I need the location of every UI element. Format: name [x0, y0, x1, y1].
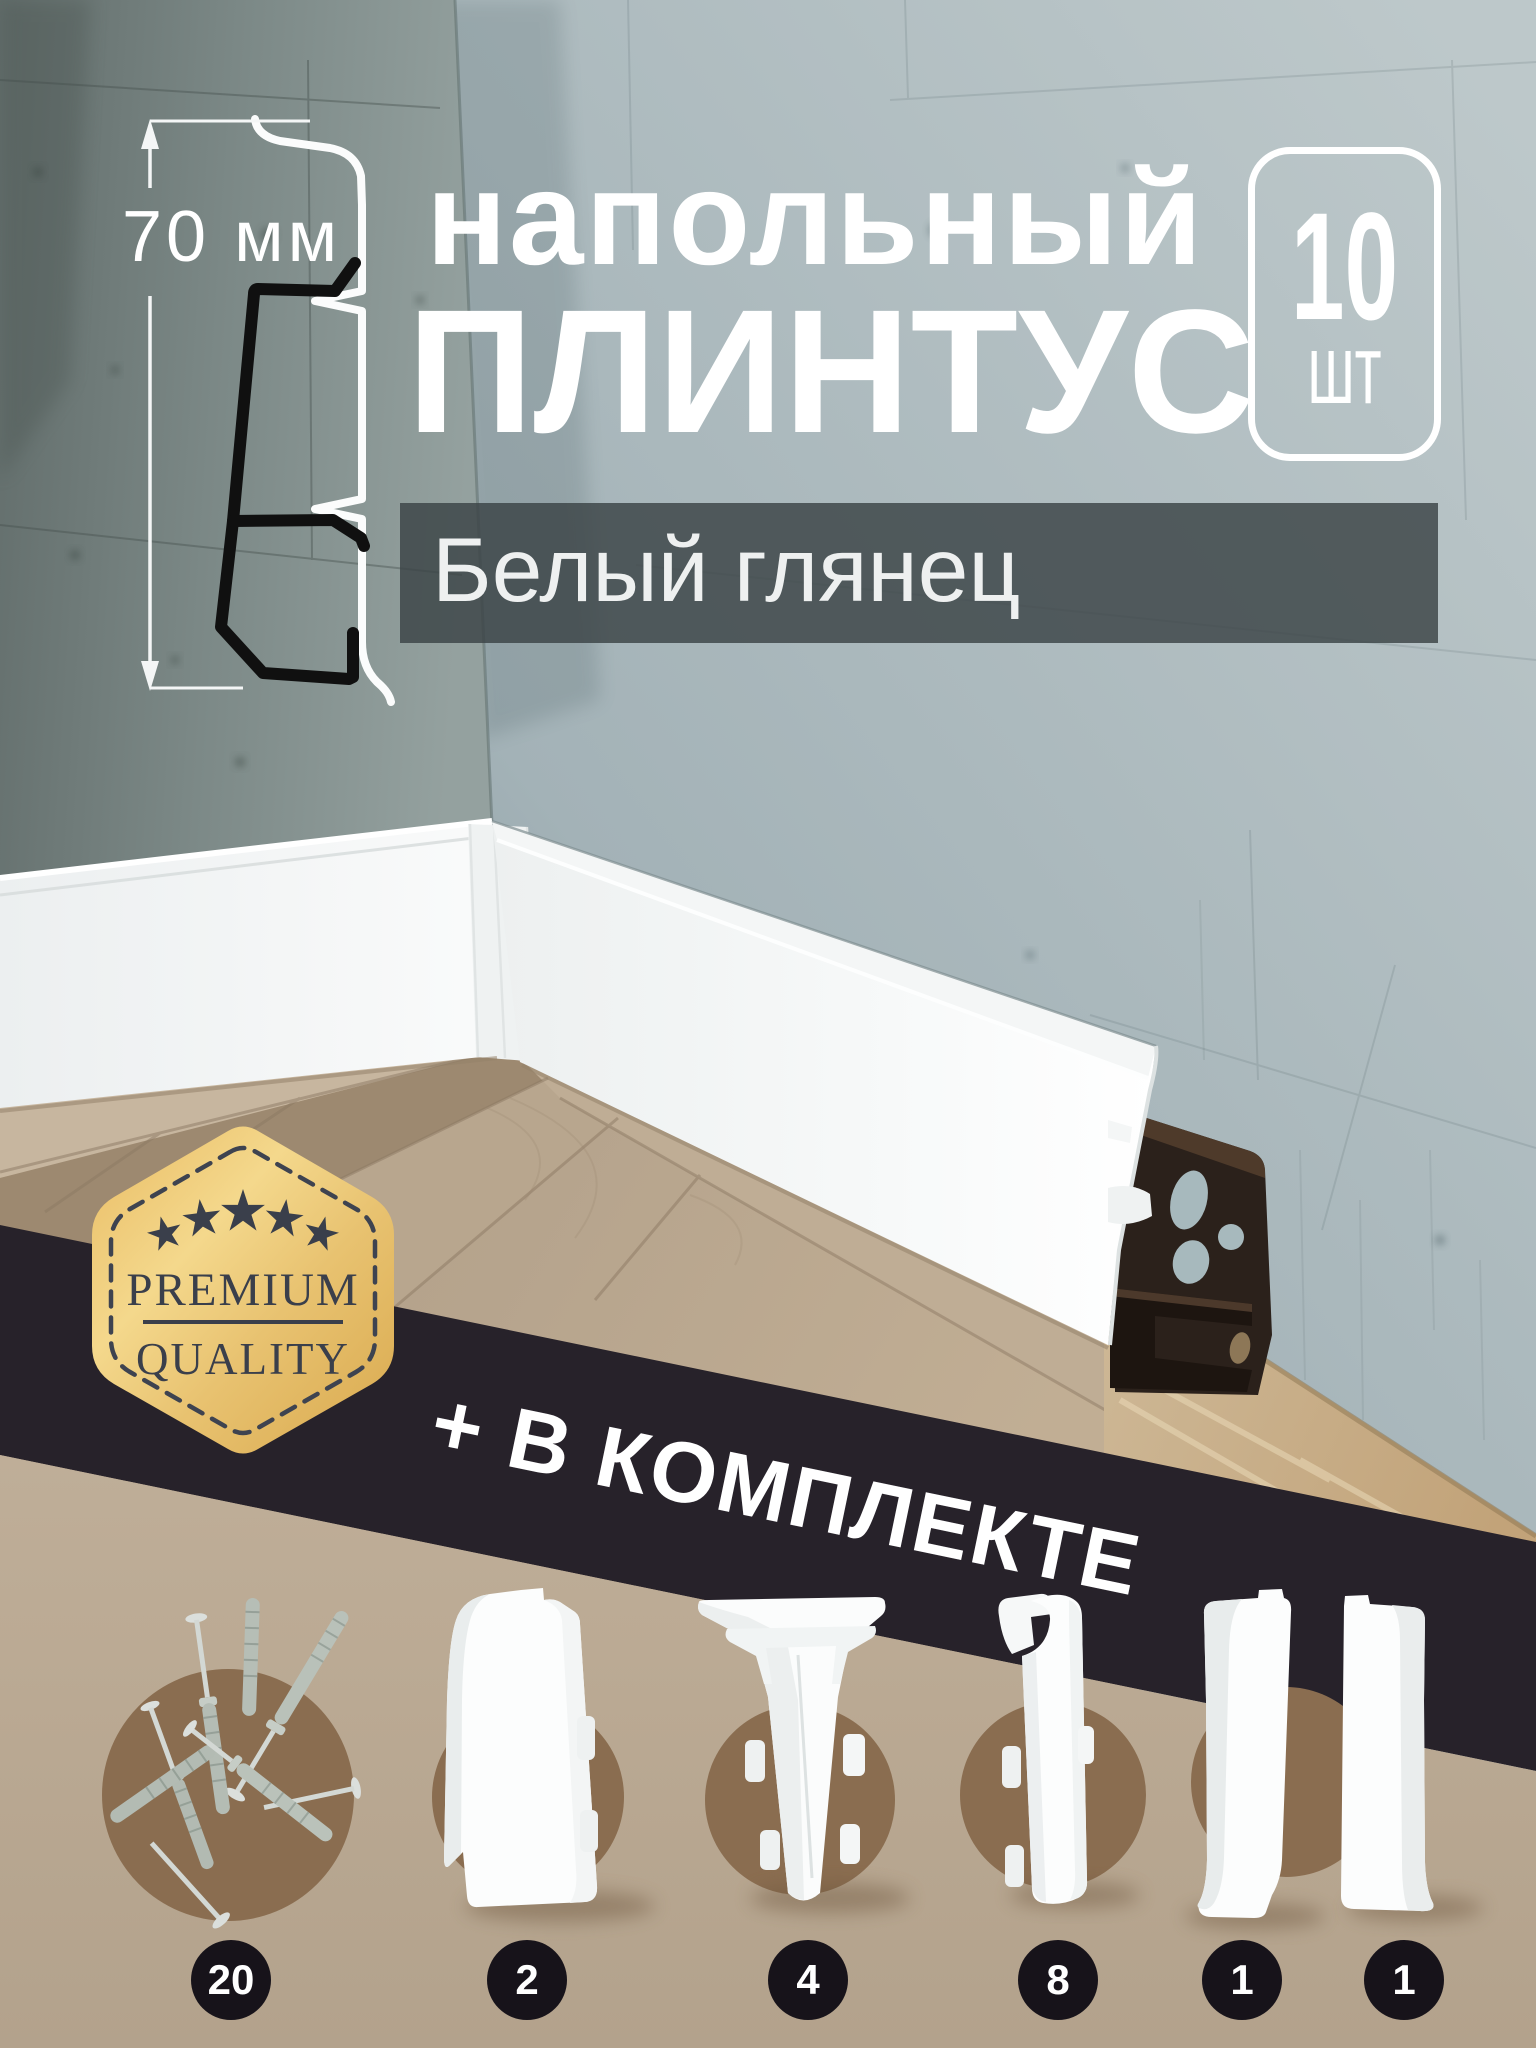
svg-text:QUALITY: QUALITY — [136, 1334, 350, 1384]
svg-text:PREMIUM: PREMIUM — [126, 1264, 359, 1316]
